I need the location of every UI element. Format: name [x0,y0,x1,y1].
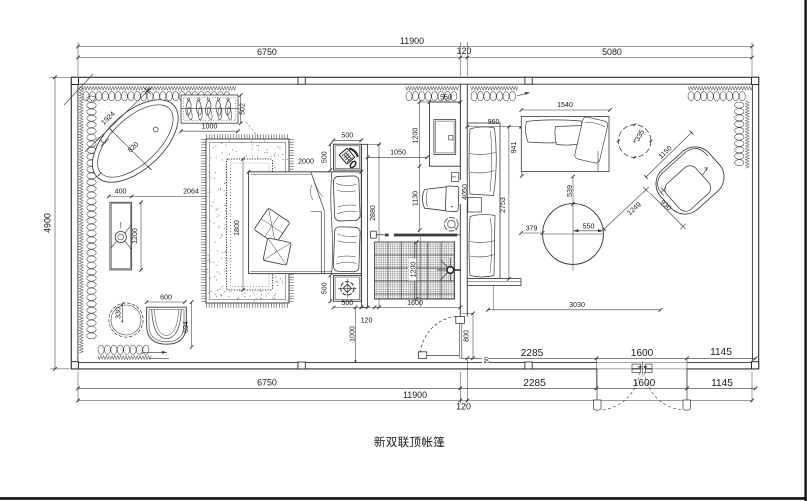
svg-text:1200: 1200 [131,228,139,244]
svg-text:500: 500 [341,132,353,140]
svg-text:新双联顶帐篷: 新双联顶帐篷 [374,435,445,449]
svg-text:1130: 1130 [411,191,419,206]
svg-text:6750: 6750 [257,47,277,57]
svg-text:3030: 3030 [569,301,585,309]
svg-text:1000: 1000 [202,123,218,131]
svg-text:500: 500 [341,299,353,307]
svg-text:2285: 2285 [523,378,546,389]
svg-text:379: 379 [526,224,538,232]
svg-text:120: 120 [457,46,472,56]
svg-text:2000: 2000 [298,158,314,166]
svg-text:800: 800 [462,330,470,342]
svg-text:120: 120 [361,317,373,325]
svg-text:1000: 1000 [348,326,356,342]
svg-text:1200: 1200 [410,262,418,278]
svg-text:960: 960 [488,118,500,126]
svg-text:1145: 1145 [710,347,732,358]
svg-text:1540: 1540 [557,101,573,109]
svg-text:2753: 2753 [499,197,507,213]
svg-text:550: 550 [440,93,452,101]
svg-text:500: 500 [321,151,329,163]
svg-text:600: 600 [160,293,172,301]
svg-text:539: 539 [566,185,574,197]
svg-text:6750: 6750 [257,378,277,388]
svg-text:11900: 11900 [403,390,427,400]
svg-text:1145: 1145 [711,378,733,389]
svg-text:1600: 1600 [407,299,423,307]
svg-text:50: 50 [485,356,491,363]
svg-text:1050: 1050 [390,149,406,157]
svg-text:1249: 1249 [626,201,643,218]
svg-text:5080: 5080 [602,47,622,57]
svg-text:1600: 1600 [633,378,656,389]
svg-text:400: 400 [115,188,127,196]
svg-text:500: 500 [321,282,329,294]
svg-text:502: 502 [239,103,247,115]
svg-text:11900: 11900 [400,36,424,46]
svg-text:1200: 1200 [411,128,419,144]
svg-text:1600: 1600 [631,348,654,359]
svg-text:4900: 4900 [43,213,53,233]
svg-text:1800: 1800 [233,220,241,236]
svg-text:941: 941 [510,142,518,154]
svg-text:550: 550 [583,222,595,230]
svg-text:120: 120 [456,402,471,412]
svg-text:2880: 2880 [369,205,377,221]
svg-text:2285: 2285 [521,348,544,359]
svg-text:694: 694 [182,321,190,333]
svg-text:330: 330 [115,307,123,319]
svg-text:2064: 2064 [183,188,199,196]
